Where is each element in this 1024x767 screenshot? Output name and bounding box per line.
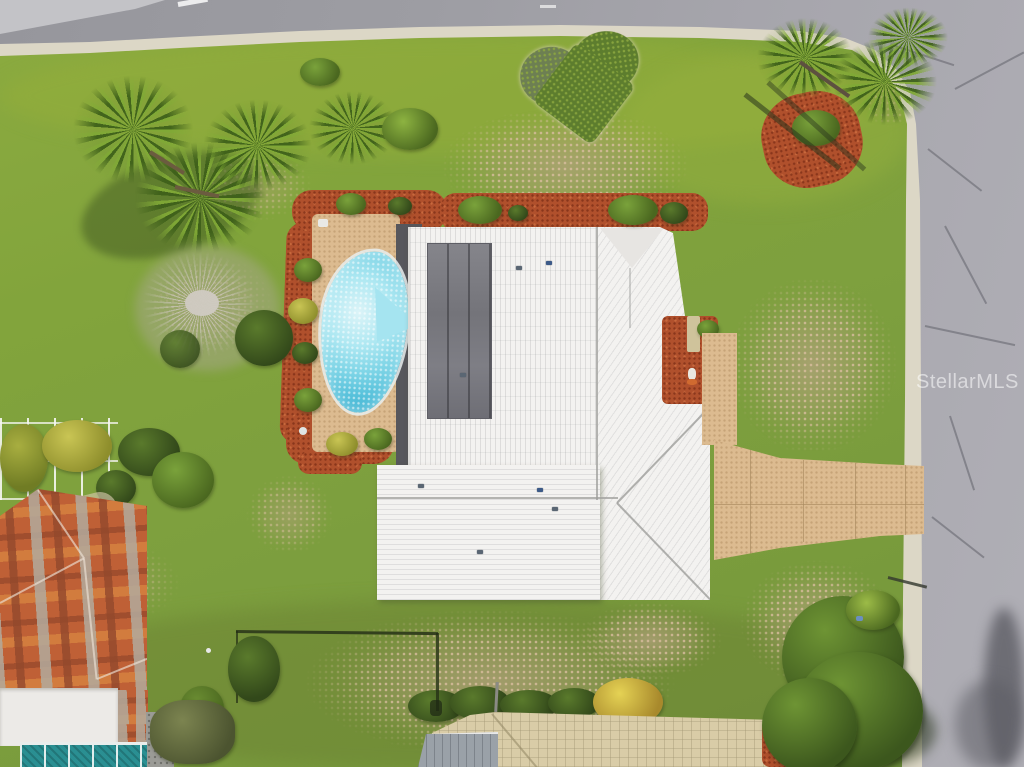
roof-seam: [491, 713, 538, 767]
roof-vent: [546, 261, 552, 265]
bright-shrub: [846, 590, 900, 630]
dry-patch: [555, 590, 745, 690]
backyard-bush: [150, 700, 235, 764]
watermark: StellarMLS: [916, 371, 1024, 394]
sprinkler-dot: [206, 648, 211, 653]
shrub: [388, 197, 412, 215]
heart-shaped-bed: [513, 25, 661, 148]
entry-walkway: [702, 333, 737, 445]
shrub: [608, 195, 658, 225]
tile-roof-ridge: [37, 489, 85, 559]
neighbor-shrub: [0, 424, 48, 492]
shrub: [660, 202, 688, 224]
roof-vent: [477, 550, 483, 554]
entry-statue-base: [687, 379, 697, 385]
undergrowth-bush: [235, 310, 293, 366]
tile-roof-ridge: [83, 559, 98, 680]
roof-vent: [460, 373, 466, 377]
shrub: [326, 432, 358, 456]
shrub: [294, 258, 322, 282]
neighbor-roof-red-strip: [118, 690, 148, 747]
neighbor-bottom-roof-gray: [418, 732, 498, 767]
driveway-joint: [750, 450, 751, 554]
tree-shadow-on-road: [955, 680, 1024, 767]
dry-patch: [232, 462, 347, 567]
roof-vent: [516, 266, 522, 270]
roof-hip-ridge: [616, 502, 711, 600]
aerial-photo: StellarMLS: [0, 0, 1024, 767]
large-tree: [762, 678, 857, 767]
main-house-roof-southwest: [377, 465, 600, 600]
driveway-joint: [855, 463, 856, 539]
roof-ridge-horizontal: [377, 497, 618, 499]
roof-vent: [537, 488, 543, 492]
driveway-joint: [803, 460, 804, 542]
undergrowth-bush: [160, 330, 200, 368]
roof-ridge-vertical: [596, 227, 598, 500]
roof-vent: [552, 507, 558, 511]
fence-post-base: [430, 700, 442, 716]
pool-equipment: [299, 427, 307, 435]
shrub: [382, 108, 438, 150]
dead-tree-trunk: [185, 290, 219, 316]
shrub: [294, 388, 322, 412]
backyard-bush: [228, 636, 280, 702]
main-house-roof-east: [597, 227, 715, 600]
palm-tree: [858, 0, 958, 75]
neighbor-white-roof: [0, 688, 118, 746]
blue-object: [856, 616, 863, 621]
roof-ridge-dormer: [629, 268, 631, 328]
neighbor-pool-cage: [20, 742, 147, 767]
tile-roof-ridge: [97, 658, 148, 680]
driveway-joint: [714, 504, 924, 505]
neighbor-shrub: [42, 420, 112, 472]
shrub: [292, 342, 318, 364]
roof-valley: [600, 228, 664, 269]
tile-roof-ridge: [0, 558, 84, 604]
shrub: [508, 205, 528, 221]
pool-equipment: [318, 219, 328, 227]
roof-vent: [418, 484, 424, 488]
driveway-joint: [905, 465, 906, 537]
neighbor-shrub: [152, 452, 214, 508]
roof-hip-ridge: [616, 406, 711, 504]
shrub: [300, 58, 340, 86]
road-marking: [540, 5, 556, 8]
solar-panel-area: [427, 243, 492, 419]
shrub: [288, 298, 318, 324]
mulch-bed-bottom: [298, 452, 362, 474]
shrub: [364, 428, 392, 450]
shrub: [336, 193, 366, 215]
shrub: [458, 196, 502, 224]
